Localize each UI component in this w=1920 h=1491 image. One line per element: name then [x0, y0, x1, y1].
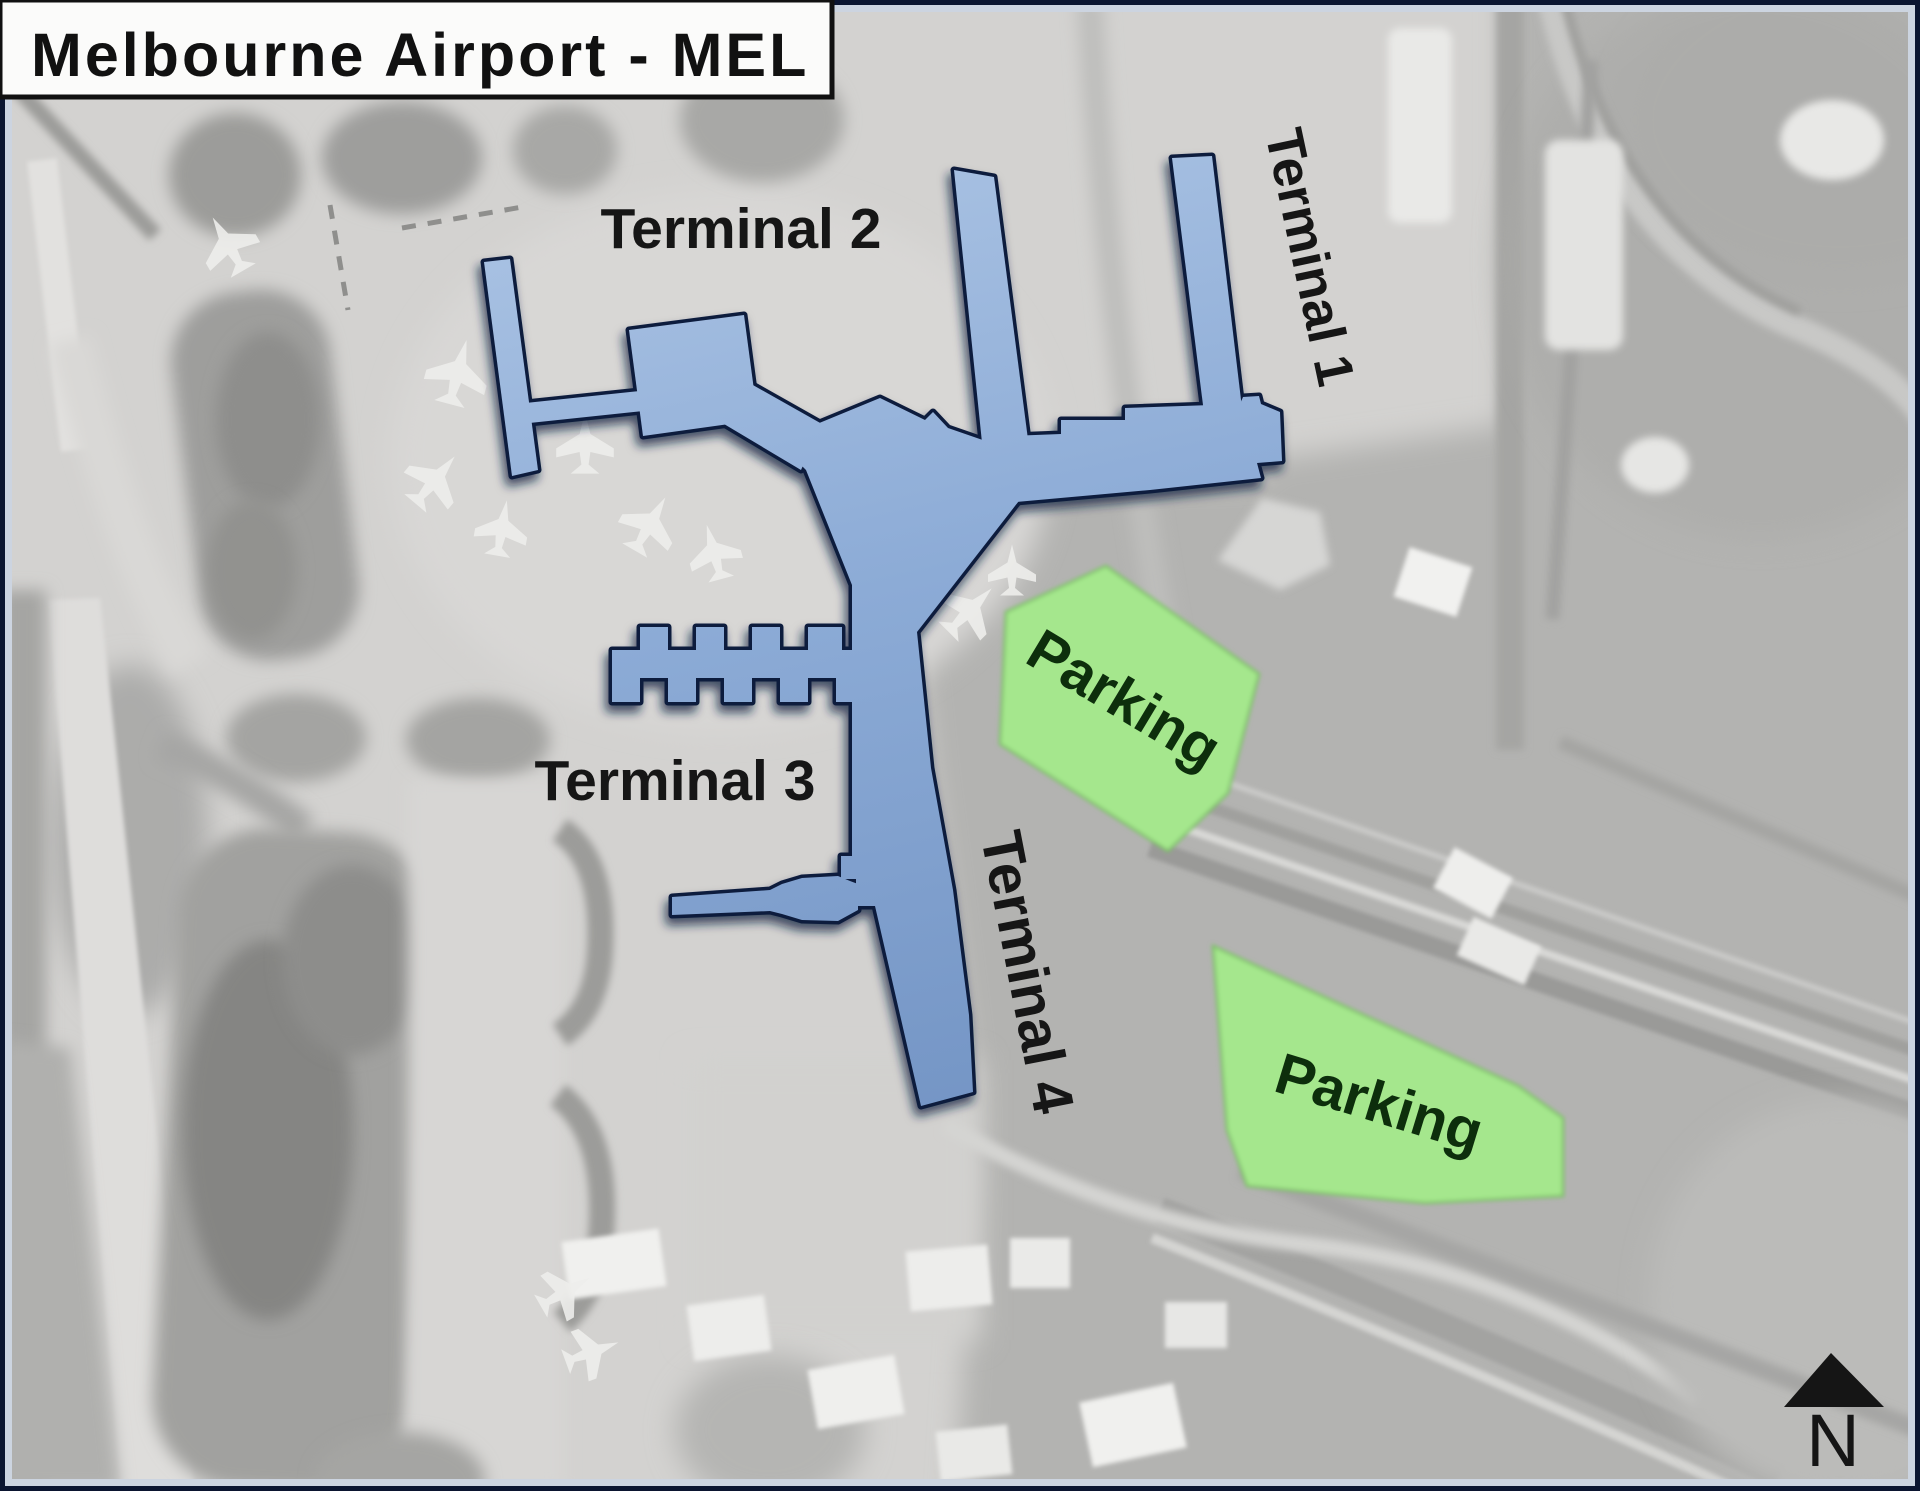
svg-text:Terminal 3: Terminal 3 — [535, 749, 816, 813]
svg-text:N: N — [1806, 1399, 1859, 1482]
svg-text:Terminal 2: Terminal 2 — [601, 197, 882, 261]
svg-text:Melbourne Airport - MEL: Melbourne Airport - MEL — [31, 21, 809, 89]
